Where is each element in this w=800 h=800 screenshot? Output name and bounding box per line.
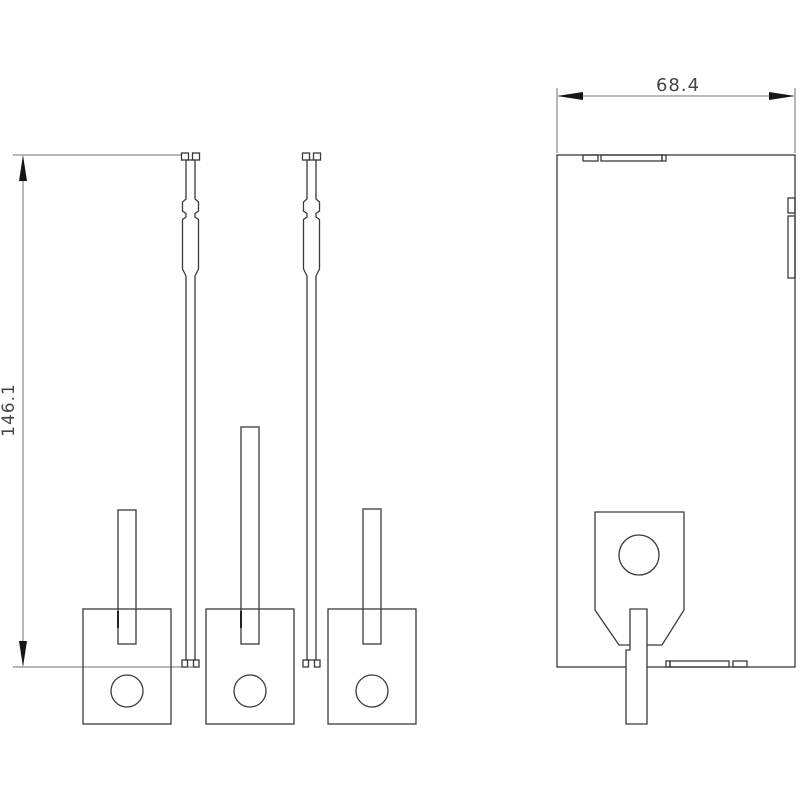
width-dimension-label: 68.4 <box>656 75 700 96</box>
side-view <box>557 155 795 724</box>
dimension-drawing: 146.1 <box>0 0 800 800</box>
height-dimension: 146.1 <box>0 155 199 667</box>
pad2-tab <box>241 427 259 644</box>
terminal-plate-hole <box>619 535 659 575</box>
terminal-pad-2 <box>206 427 294 724</box>
blade2-foot-left <box>303 660 309 667</box>
bottom-clip-small <box>733 661 747 667</box>
height-dimension-label: 146.1 <box>0 383 19 437</box>
pad3-tab <box>363 509 381 644</box>
blade2-stem <box>304 160 320 660</box>
blade1-foot-right <box>194 660 200 667</box>
blade1-stem <box>183 160 199 660</box>
body-outline <box>557 155 795 667</box>
top-clip-tick <box>662 155 666 161</box>
blade1-top-tab-right <box>193 153 200 160</box>
top-clip-long <box>601 155 662 161</box>
right-rail-long <box>788 216 795 278</box>
technical-drawing-canvas: 146.1 <box>0 0 800 800</box>
busbar-blade-2 <box>303 153 321 667</box>
terminal-blade <box>626 609 647 724</box>
top-clip-small <box>583 155 598 161</box>
arrow-left-icon <box>557 92 583 100</box>
width-dimension: 68.4 <box>557 75 795 153</box>
bottom-clip-long <box>670 661 729 667</box>
pad1-mounting-hole <box>111 675 143 707</box>
blade1-foot-left <box>182 660 188 667</box>
blade2-top-tab-left <box>303 153 310 160</box>
terminal-pad-3 <box>328 509 416 724</box>
arrow-up-icon <box>19 155 27 181</box>
pad2-mounting-hole <box>234 675 266 707</box>
front-view <box>83 153 416 724</box>
terminal-pad-1 <box>83 510 171 724</box>
arrow-down-icon <box>19 641 27 667</box>
arrow-right-icon <box>769 92 795 100</box>
blade2-foot-right <box>315 660 321 667</box>
right-rail-small <box>788 198 795 213</box>
pad1-tab <box>118 510 136 644</box>
pad3-mounting-hole <box>356 675 388 707</box>
blade2-top-tab-right <box>314 153 321 160</box>
busbar-blade-1 <box>182 153 200 667</box>
blade1-top-tab-left <box>182 153 189 160</box>
